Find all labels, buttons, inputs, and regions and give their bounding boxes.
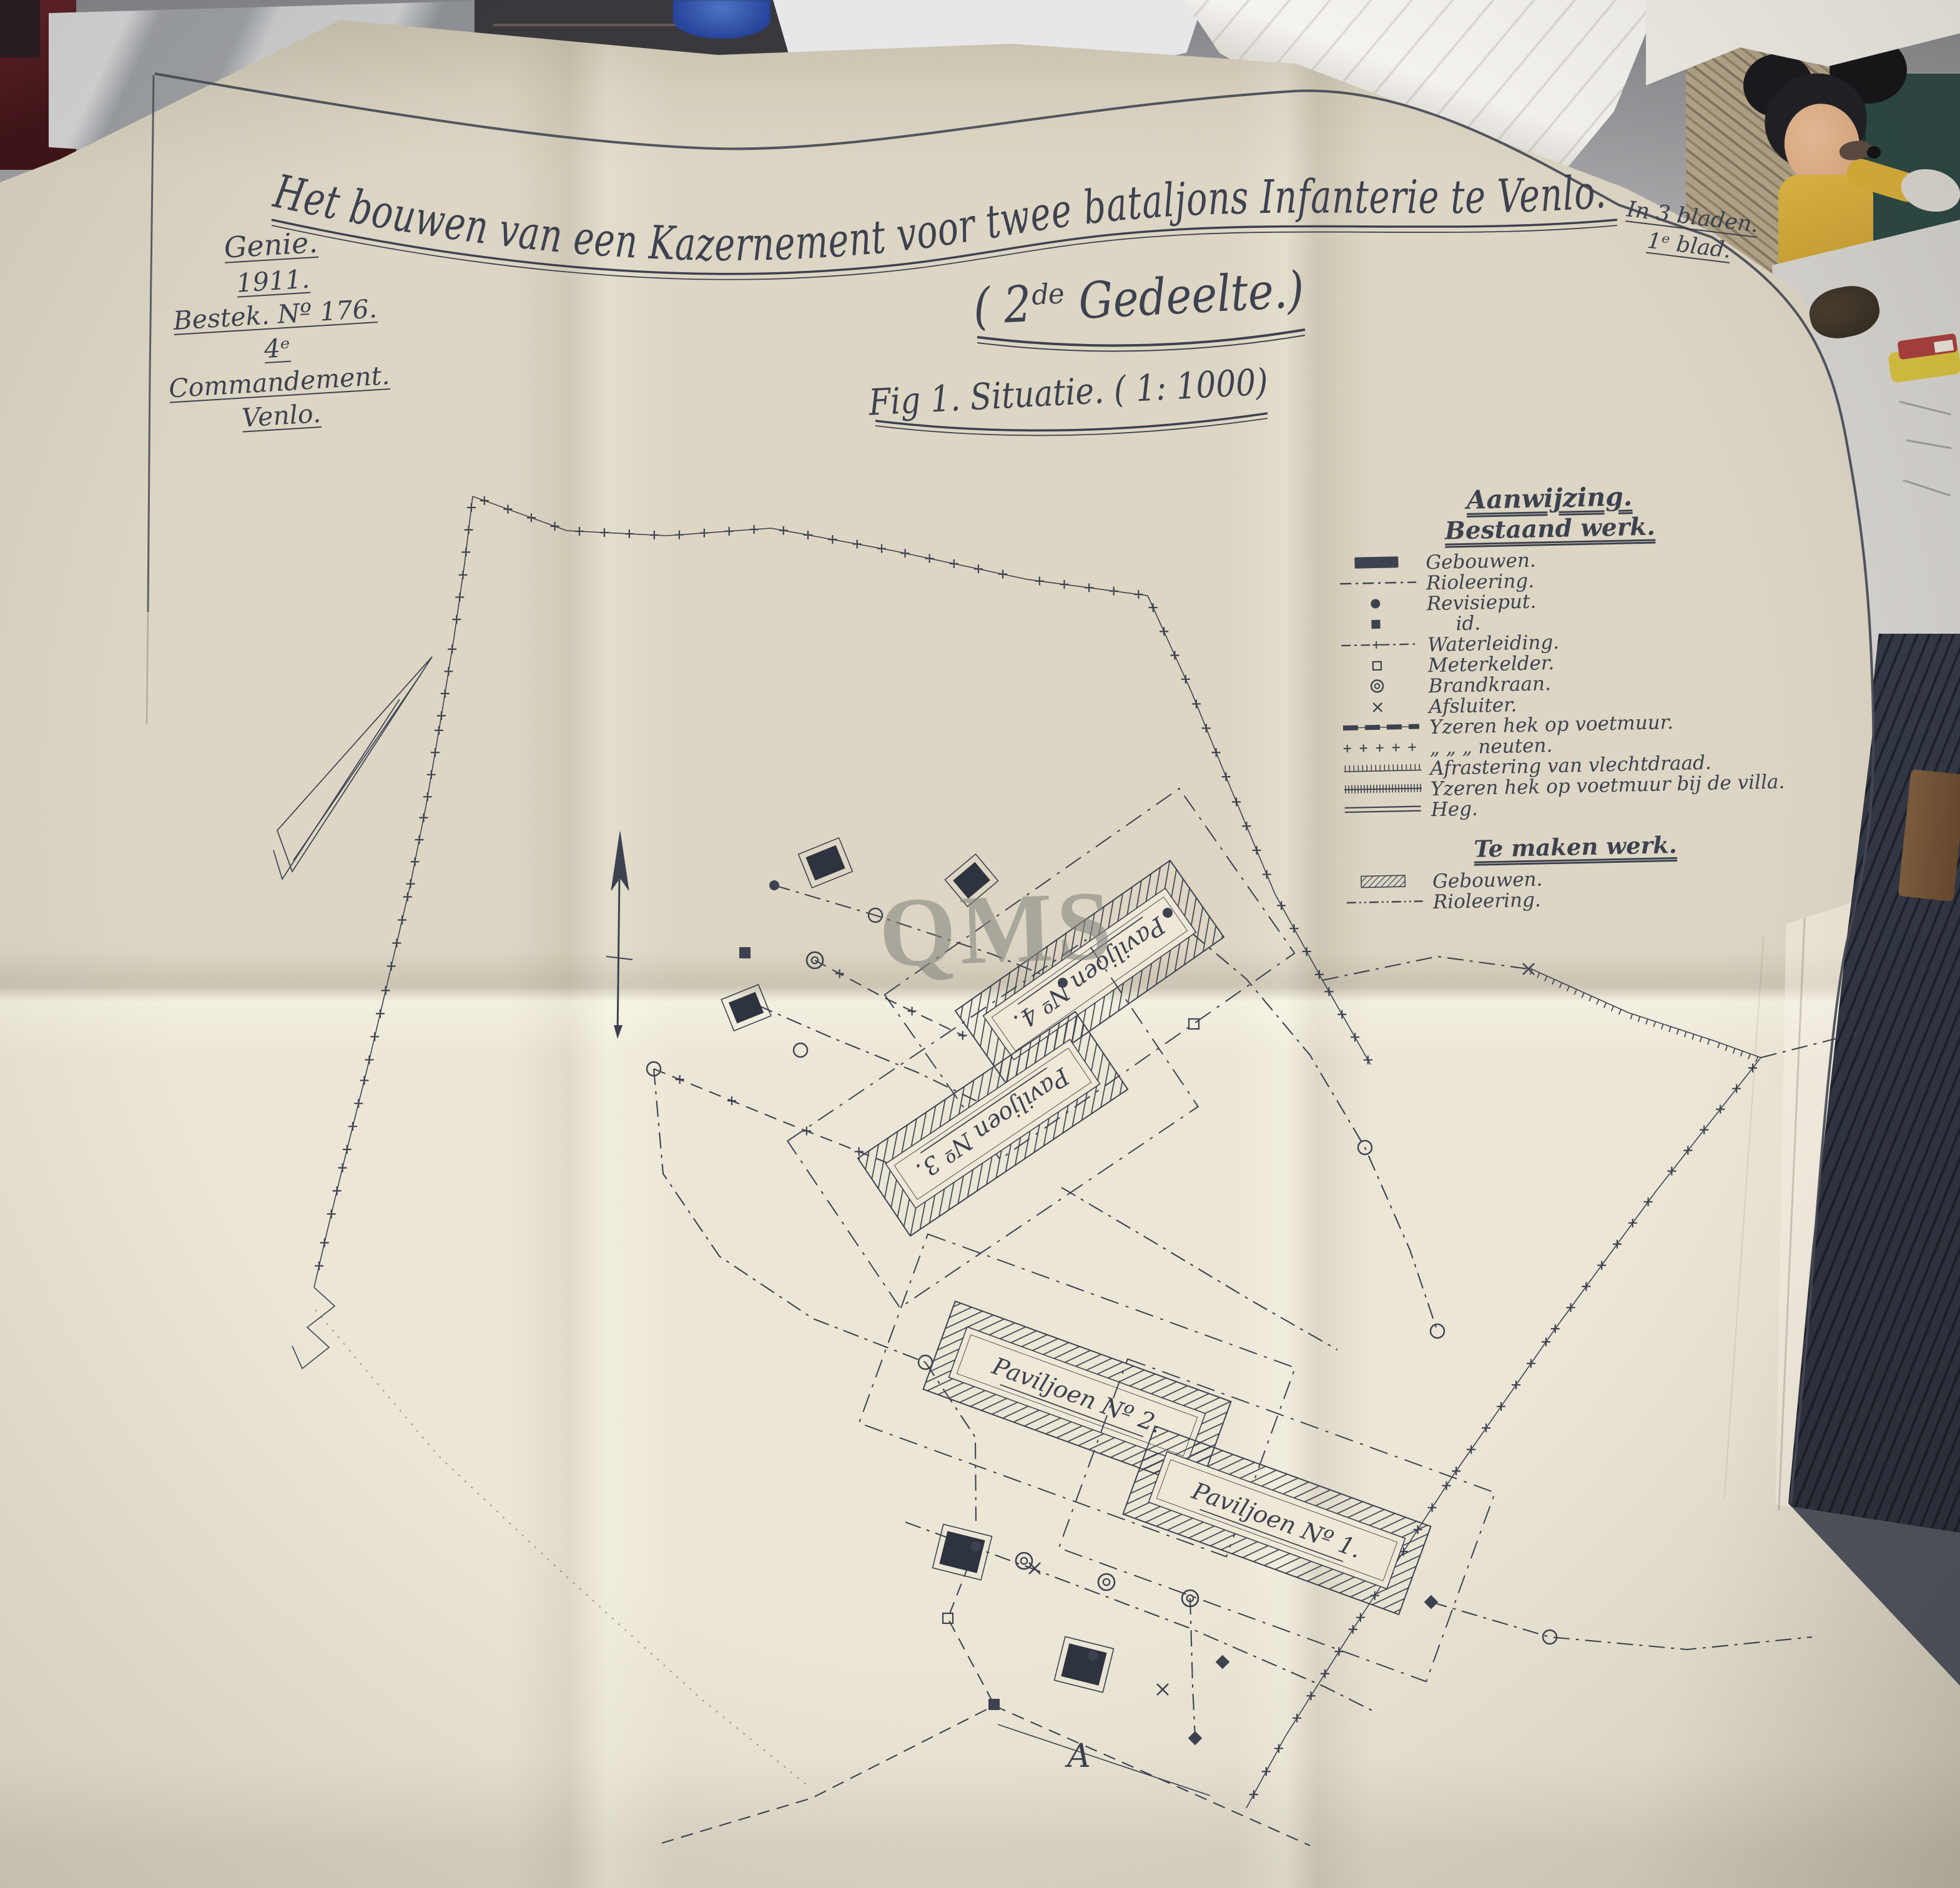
qms-watermark: QMS	[877, 868, 1117, 990]
fence-tick	[551, 522, 559, 531]
legend-symbol-dashdot	[1339, 573, 1427, 595]
fence-tick	[1545, 976, 1547, 981]
fence-tick	[1552, 980, 1555, 985]
fence-tick	[1303, 947, 1311, 956]
fence-tick	[1574, 990, 1577, 995]
fence-tick	[1262, 1767, 1271, 1776]
fence-tick	[1700, 1126, 1708, 1134]
fence-tick	[1685, 1031, 1687, 1037]
fence-tick	[1315, 970, 1324, 979]
fence-tick	[950, 559, 958, 568]
fence-tick	[1628, 1219, 1637, 1227]
utility-line	[1761, 1033, 1859, 1058]
fence-tick	[1551, 1324, 1560, 1333]
fence-tick	[1324, 987, 1333, 996]
point-a-label: A	[1065, 1738, 1091, 1775]
fence-tick	[419, 814, 428, 822]
fence-tick	[1718, 1043, 1720, 1048]
fence-tick	[855, 1148, 864, 1156]
legend-symbol-plusrow	[1342, 738, 1430, 760]
legend-symbol-osquare	[1341, 656, 1429, 677]
site-boundary	[1148, 596, 1371, 1064]
fence-tick	[1612, 1006, 1614, 1011]
fence-tick	[1307, 1691, 1316, 1700]
fence-tick	[802, 1127, 811, 1136]
fence-tick	[1035, 577, 1044, 586]
fence-tick	[1618, 1010, 1621, 1015]
fence-tick	[1232, 797, 1241, 806]
fence-tick	[467, 503, 476, 512]
map-symbol-osquare	[943, 1613, 953, 1623]
fence-tick	[1725, 1046, 1727, 1051]
existing-building	[799, 838, 853, 888]
fence-tick	[320, 1239, 329, 1247]
map-symbol-dot	[1163, 908, 1173, 918]
fence-tick	[1085, 583, 1093, 592]
map-symbol-xmark	[1157, 1684, 1168, 1695]
utility-line	[662, 1706, 994, 1843]
fence-tick	[1351, 1033, 1359, 1041]
site-boundary	[473, 496, 1148, 596]
fence-tick	[1149, 603, 1158, 612]
fence-tick	[387, 962, 396, 971]
fence-tick	[877, 544, 886, 553]
fence-tick	[1253, 846, 1261, 855]
fence-tick	[1716, 1105, 1725, 1114]
utility-line	[1431, 1602, 1812, 1650]
legend-symbol-dline	[1343, 800, 1431, 822]
drawing-border-left-faint	[147, 612, 148, 724]
fence-tick	[1060, 580, 1068, 589]
fence-tick	[1527, 1359, 1535, 1368]
fence-tick	[458, 571, 467, 579]
fence-tick	[974, 564, 983, 573]
fence-tick	[1741, 1051, 1743, 1056]
utility-line	[654, 1069, 925, 1362]
map-symbol-square	[739, 947, 751, 958]
fence-tick	[465, 526, 473, 534]
map-symbol-diamond	[1216, 1655, 1230, 1669]
figure-caption: Fig 1. Situatie. ( 1: 1000)	[867, 360, 1269, 423]
fence-tick	[343, 1145, 352, 1154]
fence-tick	[1337, 1010, 1346, 1019]
fence-tick	[1482, 1423, 1490, 1432]
map-symbol-dot	[971, 1541, 981, 1551]
north-arrow-tail	[614, 1025, 623, 1039]
legend-label: Rioleering.	[1432, 888, 1541, 913]
fence-tick	[1748, 1064, 1757, 1073]
fence-tick	[480, 496, 489, 505]
fence-tick	[1274, 1744, 1283, 1753]
fence-tick	[901, 549, 910, 558]
fence-tick	[1293, 1714, 1301, 1723]
fence-tick	[625, 529, 634, 538]
legend-symbol-solid-rect	[1338, 553, 1426, 574]
fence-tick	[700, 529, 709, 538]
fence-tick	[1242, 822, 1251, 830]
fence-tick	[1662, 1024, 1663, 1030]
fence-tick	[1181, 675, 1190, 684]
fence-tick	[354, 1099, 363, 1108]
map-symbol-ring	[1431, 1324, 1444, 1338]
north-arrow-cross	[606, 956, 633, 960]
fence-tick	[1134, 590, 1143, 599]
map-symbol-square	[988, 1699, 1000, 1710]
fence-tick	[415, 835, 423, 844]
fence-tick	[1289, 924, 1298, 933]
fence-tick	[1669, 1026, 1671, 1032]
fence-tick	[650, 531, 659, 539]
site-boundary	[314, 885, 410, 1287]
fence-tick	[527, 513, 536, 522]
fence-tick	[437, 711, 446, 720]
fence-tick	[1582, 1282, 1590, 1291]
fence-tick	[1613, 1240, 1622, 1249]
fence-tick	[1567, 1303, 1575, 1312]
fence-tick	[1638, 1016, 1640, 1022]
fence-tick	[1542, 1337, 1550, 1346]
photo-of-blueprint: Het bouwen van een Kazernement voor twee…	[0, 0, 1960, 1888]
fence-tick	[1567, 986, 1570, 991]
fence-tick	[779, 526, 788, 535]
legend-symbol-dashdotdot	[1346, 892, 1434, 914]
fence-tick	[1597, 1261, 1606, 1270]
fence-tick	[1428, 1503, 1437, 1512]
fence-tick	[1667, 1167, 1676, 1176]
map-symbol-osquare	[1189, 1019, 1199, 1029]
fence-tick	[1110, 587, 1118, 596]
fence-tick	[675, 531, 684, 539]
fence-tick	[1653, 1021, 1655, 1027]
utility-line	[1322, 956, 1529, 980]
fence-tick	[1452, 1467, 1460, 1475]
fence-tick	[315, 1262, 323, 1271]
utility-line	[1061, 1187, 1337, 1350]
fence-tick	[1212, 748, 1221, 757]
fence-tick	[804, 531, 812, 539]
fence-tick	[455, 592, 464, 601]
fence-tick	[1221, 772, 1230, 781]
fence-tick	[1160, 627, 1168, 636]
fence-tick	[908, 1006, 917, 1015]
fence-tick	[958, 1031, 967, 1040]
fence-tick	[725, 527, 734, 536]
legend-section-heading: Te maken werk.	[1382, 829, 1770, 865]
utility-line	[1190, 1598, 1195, 1738]
legend-symbol-wall	[1342, 717, 1430, 739]
utility-line	[654, 1069, 887, 1163]
fence-tick	[327, 1209, 336, 1218]
site-boundary	[1246, 1058, 1761, 1808]
fence-tick	[1170, 651, 1179, 660]
map-symbol-dcircle	[1098, 1574, 1115, 1590]
legend-symbol-hatchrect	[1345, 872, 1433, 893]
fence-tick	[360, 1076, 368, 1084]
existing-building	[1054, 1636, 1113, 1692]
title-block-left: Genie.1911.Bestek. Nº 176.4ᵉ Commandemen…	[145, 219, 406, 440]
fence-tick	[392, 939, 401, 948]
fence-tick	[370, 1032, 379, 1041]
fence-tick	[1708, 1040, 1710, 1045]
dotted-path	[315, 1310, 809, 1787]
fence-tick	[1277, 901, 1286, 910]
fence-tick	[1356, 1613, 1365, 1622]
fence-tick	[1192, 699, 1201, 708]
map-symbol-diamond	[1188, 1731, 1203, 1746]
fence-tick	[427, 770, 436, 779]
legend-symbol-square	[1339, 614, 1427, 636]
legend: Aanwijzing.Bestaand werk.Gebouwen.Riolee…	[1337, 479, 1770, 914]
fence-tick	[828, 535, 837, 544]
fence-tick	[348, 1122, 357, 1131]
fence-tick	[1349, 1625, 1357, 1634]
legend-symbol-comb	[1342, 759, 1431, 780]
fence-tick	[1512, 1380, 1520, 1389]
map-symbol-dot	[769, 880, 779, 890]
fence-tick	[727, 1096, 736, 1105]
map-symbol-dot	[1088, 1651, 1098, 1661]
fence-tick	[1683, 1146, 1692, 1155]
fence-tick	[1677, 1029, 1678, 1035]
fence-tick	[1442, 1482, 1451, 1490]
fence-tick	[423, 792, 432, 801]
fence-tick	[365, 1055, 373, 1064]
fence-tick	[435, 726, 443, 735]
fence-tick	[410, 857, 419, 866]
fence-tick	[1733, 1048, 1735, 1053]
fence-tick	[1537, 973, 1540, 978]
fence-tick	[1589, 996, 1592, 1001]
fence-tick	[1321, 1669, 1329, 1678]
fence-tick	[403, 893, 412, 902]
fence-tick	[853, 539, 862, 548]
fence-tick	[431, 748, 440, 757]
map-symbol-ring	[794, 1043, 807, 1057]
fence-tick	[398, 916, 406, 925]
legend-label: Heg.	[1431, 797, 1478, 821]
fence-tick	[1700, 1037, 1702, 1043]
fence-tick	[676, 1075, 684, 1084]
legend-symbol-xmark	[1341, 697, 1429, 719]
fence-tick	[1364, 1056, 1372, 1064]
fence-tick	[338, 1163, 347, 1172]
north-arrow-shaft	[618, 878, 619, 1035]
map-symbol-dcircle	[1016, 1553, 1032, 1569]
legend-symbol-dcircle	[1341, 676, 1429, 698]
utility-line	[1168, 913, 1437, 1331]
fence-tick	[333, 1186, 342, 1195]
fence-tick	[1467, 1445, 1475, 1454]
fence-tick	[835, 969, 844, 978]
fence-tick	[1202, 724, 1211, 732]
fence-tick	[406, 880, 415, 888]
fence-tick	[1263, 870, 1271, 879]
fence-tick	[1582, 993, 1584, 998]
fence-tick	[452, 615, 461, 624]
fence-tick	[1732, 1084, 1741, 1093]
fence-tick	[1597, 1000, 1599, 1005]
fence-tick	[461, 548, 470, 556]
legend-label: id.	[1427, 612, 1480, 636]
terrain-wedge	[273, 699, 400, 879]
boundary-sawtooth	[292, 1287, 335, 1369]
fence-tick	[1604, 1003, 1607, 1008]
fence-tick	[1748, 1054, 1750, 1059]
site-boundary	[1529, 968, 1761, 1058]
existing-building	[932, 1524, 992, 1580]
fence-tick	[448, 645, 456, 654]
fence-tick	[382, 986, 390, 995]
legend-symbol-dashdotplus	[1340, 635, 1428, 657]
fence-tick	[503, 505, 512, 514]
fence-tick	[1692, 1034, 1694, 1040]
legend-symbol-combdense	[1343, 779, 1431, 801]
terrain-wedge	[277, 657, 432, 872]
fence-tick	[575, 527, 584, 536]
fence-tick	[600, 528, 609, 537]
legend-label: Revisieput.	[1426, 590, 1536, 615]
fence-tick	[444, 667, 453, 676]
fence-tick	[376, 1009, 385, 1018]
fence-tick	[925, 554, 934, 563]
fence-tick	[1630, 1014, 1632, 1020]
site-boundary	[410, 496, 473, 885]
fence-tick	[1249, 1790, 1258, 1799]
fence-tick	[441, 689, 450, 698]
legend-symbol-dot	[1339, 594, 1427, 616]
point-a-line	[998, 1724, 1210, 1796]
utility-line	[757, 1005, 977, 1101]
fence-tick	[1560, 983, 1562, 988]
fence-tick	[1497, 1402, 1505, 1411]
fence-tick	[1646, 1019, 1648, 1025]
subtitle: ( 2ᵈᵉ Gedeelte.)	[972, 260, 1305, 336]
fence-tick	[998, 570, 1007, 579]
map-symbol-diamond	[1424, 1595, 1439, 1610]
fence-tick	[750, 525, 759, 534]
fence-tick	[1644, 1197, 1653, 1206]
